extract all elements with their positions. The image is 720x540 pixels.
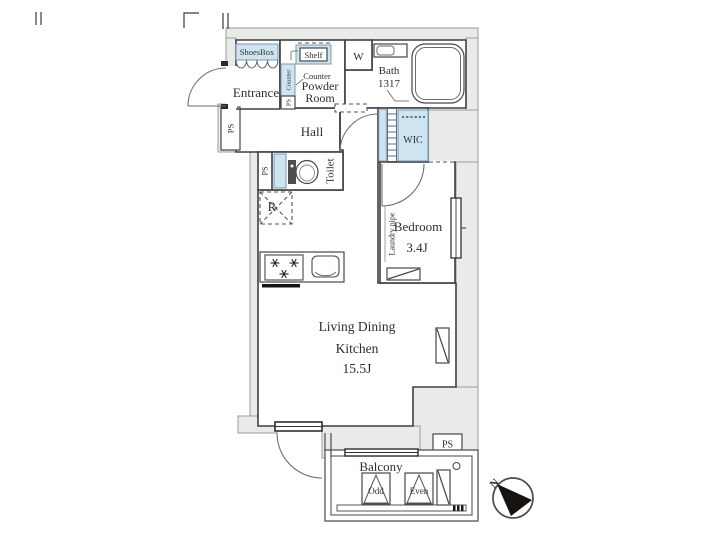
ldk-shutter bbox=[436, 328, 449, 363]
wic-label: WIC bbox=[403, 135, 423, 146]
cut-mark bbox=[184, 13, 199, 28]
ps-powder-label: PS bbox=[286, 99, 293, 107]
kitchen-front-line bbox=[262, 284, 300, 288]
even-panel-label: Even bbox=[410, 486, 429, 496]
refrigerator-space: R bbox=[260, 192, 292, 224]
balcony-partition bbox=[437, 470, 450, 505]
bath-size-label: 1317 bbox=[378, 78, 401, 90]
counter-strip: Counter PS bbox=[281, 64, 295, 109]
bath-label: Bath bbox=[379, 65, 400, 77]
wall-right-upper bbox=[466, 38, 478, 114]
entrance-door bbox=[188, 61, 237, 109]
wic-left-strip bbox=[379, 109, 387, 161]
toilet-back-panel bbox=[274, 154, 286, 188]
ps-balcony-label: PS bbox=[442, 440, 453, 451]
even-panel: Even bbox=[405, 473, 433, 504]
drain-bar bbox=[453, 506, 456, 512]
counter-strip-label: Counter bbox=[286, 69, 293, 91]
bedroom-slider bbox=[387, 268, 420, 280]
toilet-icon bbox=[288, 160, 318, 184]
washer-label: W bbox=[353, 51, 364, 63]
counter-label: Counter bbox=[303, 71, 331, 81]
wall-right-lower bbox=[456, 162, 478, 388]
entrance-label: Entrance bbox=[233, 85, 279, 100]
wic-interior: WIC bbox=[379, 109, 428, 161]
refrigerator-label: R bbox=[268, 199, 277, 214]
floor-plan-page: Odd Even ShoesBox Shelf bbox=[0, 0, 720, 540]
shelf: Shelf bbox=[291, 45, 331, 64]
wall-wic-right-block bbox=[428, 110, 478, 162]
floor-plan: Odd Even ShoesBox Shelf bbox=[0, 0, 720, 540]
shelf-label: Shelf bbox=[305, 50, 323, 60]
odd-panel: Odd bbox=[362, 473, 390, 504]
shoes-box-label: ShoesBox bbox=[240, 47, 275, 57]
ldk-size-label: 15.5J bbox=[343, 361, 372, 376]
ldk-label-1: Living Dining bbox=[319, 319, 396, 334]
bath-sliding-door bbox=[335, 104, 367, 112]
balcony-window bbox=[345, 449, 418, 456]
bathtub-icon bbox=[412, 44, 464, 103]
entrance-door-swing-arc bbox=[188, 68, 226, 106]
hall-label: Hall bbox=[301, 124, 324, 139]
entrance-door-frame-tick-top bbox=[221, 61, 228, 66]
balcony-door-swing-arc bbox=[277, 433, 322, 478]
kitchen-icon bbox=[260, 252, 344, 288]
odd-panel-label: Odd bbox=[368, 486, 384, 496]
compass-needle bbox=[497, 484, 532, 516]
wall-left-lower bbox=[250, 150, 258, 433]
bathtub-outer bbox=[412, 44, 464, 103]
hose-bib-icon bbox=[453, 463, 460, 470]
drain-grate bbox=[453, 506, 464, 512]
balcony-door bbox=[275, 422, 322, 478]
balcony-label: Balcony bbox=[359, 459, 403, 474]
drain-bar bbox=[457, 506, 460, 512]
ps-toilet-label: PS bbox=[261, 167, 270, 176]
ldk-label-2: Kitchen bbox=[336, 341, 379, 356]
wall-top-band bbox=[226, 28, 478, 40]
compass: N bbox=[488, 477, 533, 518]
bath-sink-icon bbox=[374, 44, 407, 57]
toilet-tank bbox=[288, 160, 296, 184]
bedroom-label: Bedroom bbox=[394, 219, 442, 234]
toilet-label: Toilet bbox=[325, 158, 337, 184]
powder-room-label-2: Room bbox=[305, 91, 335, 105]
laundry-pipe-label: Laundry pipe bbox=[388, 212, 397, 255]
toilet-knob bbox=[291, 165, 294, 168]
neighbor-cut-marks bbox=[36, 12, 228, 29]
drain-bar bbox=[461, 506, 464, 512]
ps-entrance-label: PS bbox=[226, 124, 236, 134]
bedroom-size-label: 3.4J bbox=[406, 240, 427, 255]
